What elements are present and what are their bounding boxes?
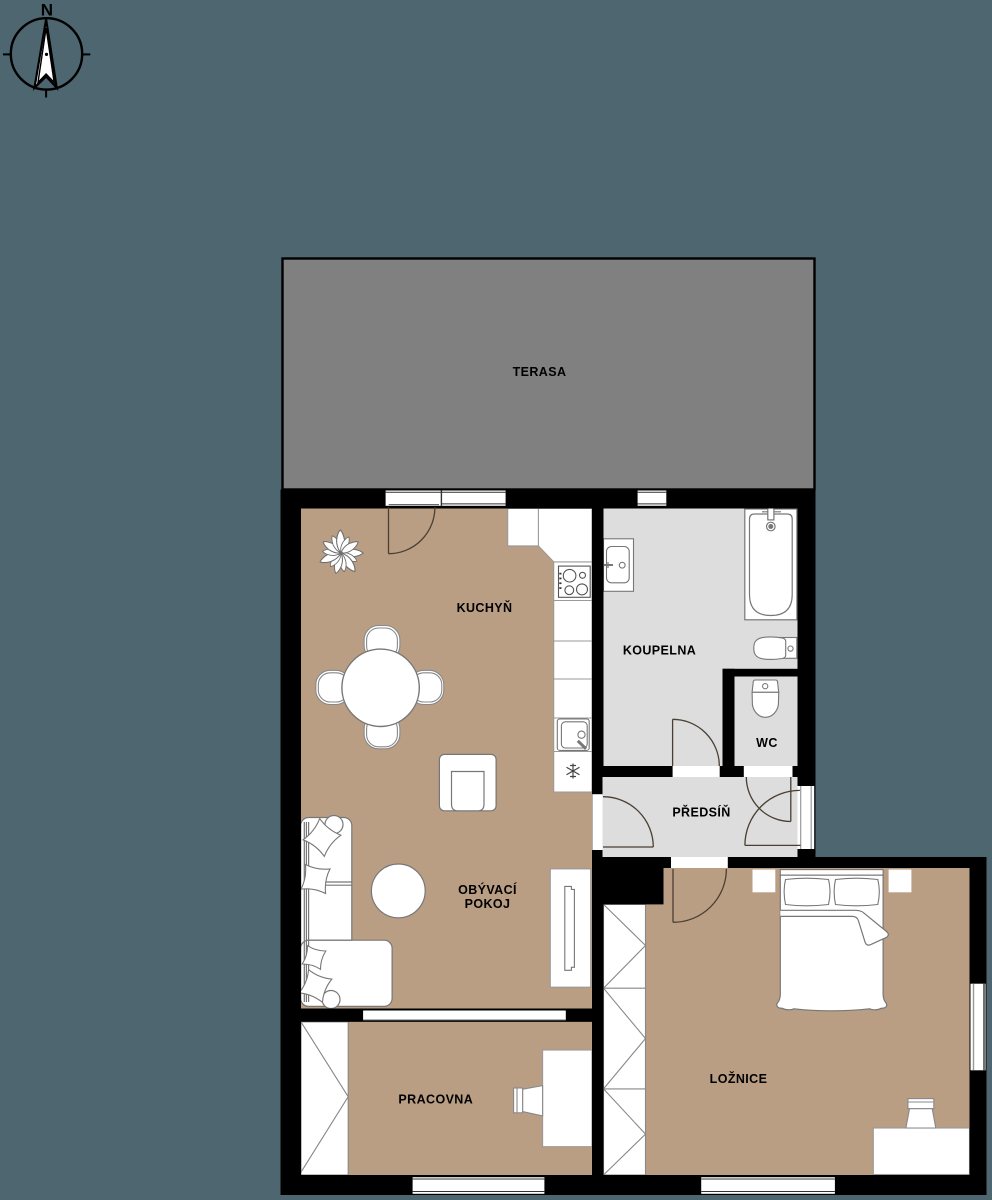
- svg-text:KOUPELNA: KOUPELNA: [623, 644, 696, 658]
- svg-text:OBÝVACÍ: OBÝVACÍ: [458, 882, 517, 897]
- svg-text:WC: WC: [756, 736, 778, 750]
- svg-text:PRACOVNA: PRACOVNA: [398, 1093, 473, 1107]
- svg-text:POKOJ: POKOJ: [465, 897, 511, 911]
- svg-text:TERASA: TERASA: [513, 365, 567, 379]
- svg-text:LOŽNICE: LOŽNICE: [710, 1071, 768, 1086]
- svg-text:N: N: [41, 1, 53, 20]
- svg-text:KUCHYŇ: KUCHYŇ: [457, 600, 513, 615]
- svg-text:PŘEDSÍŇ: PŘEDSÍŇ: [672, 805, 730, 820]
